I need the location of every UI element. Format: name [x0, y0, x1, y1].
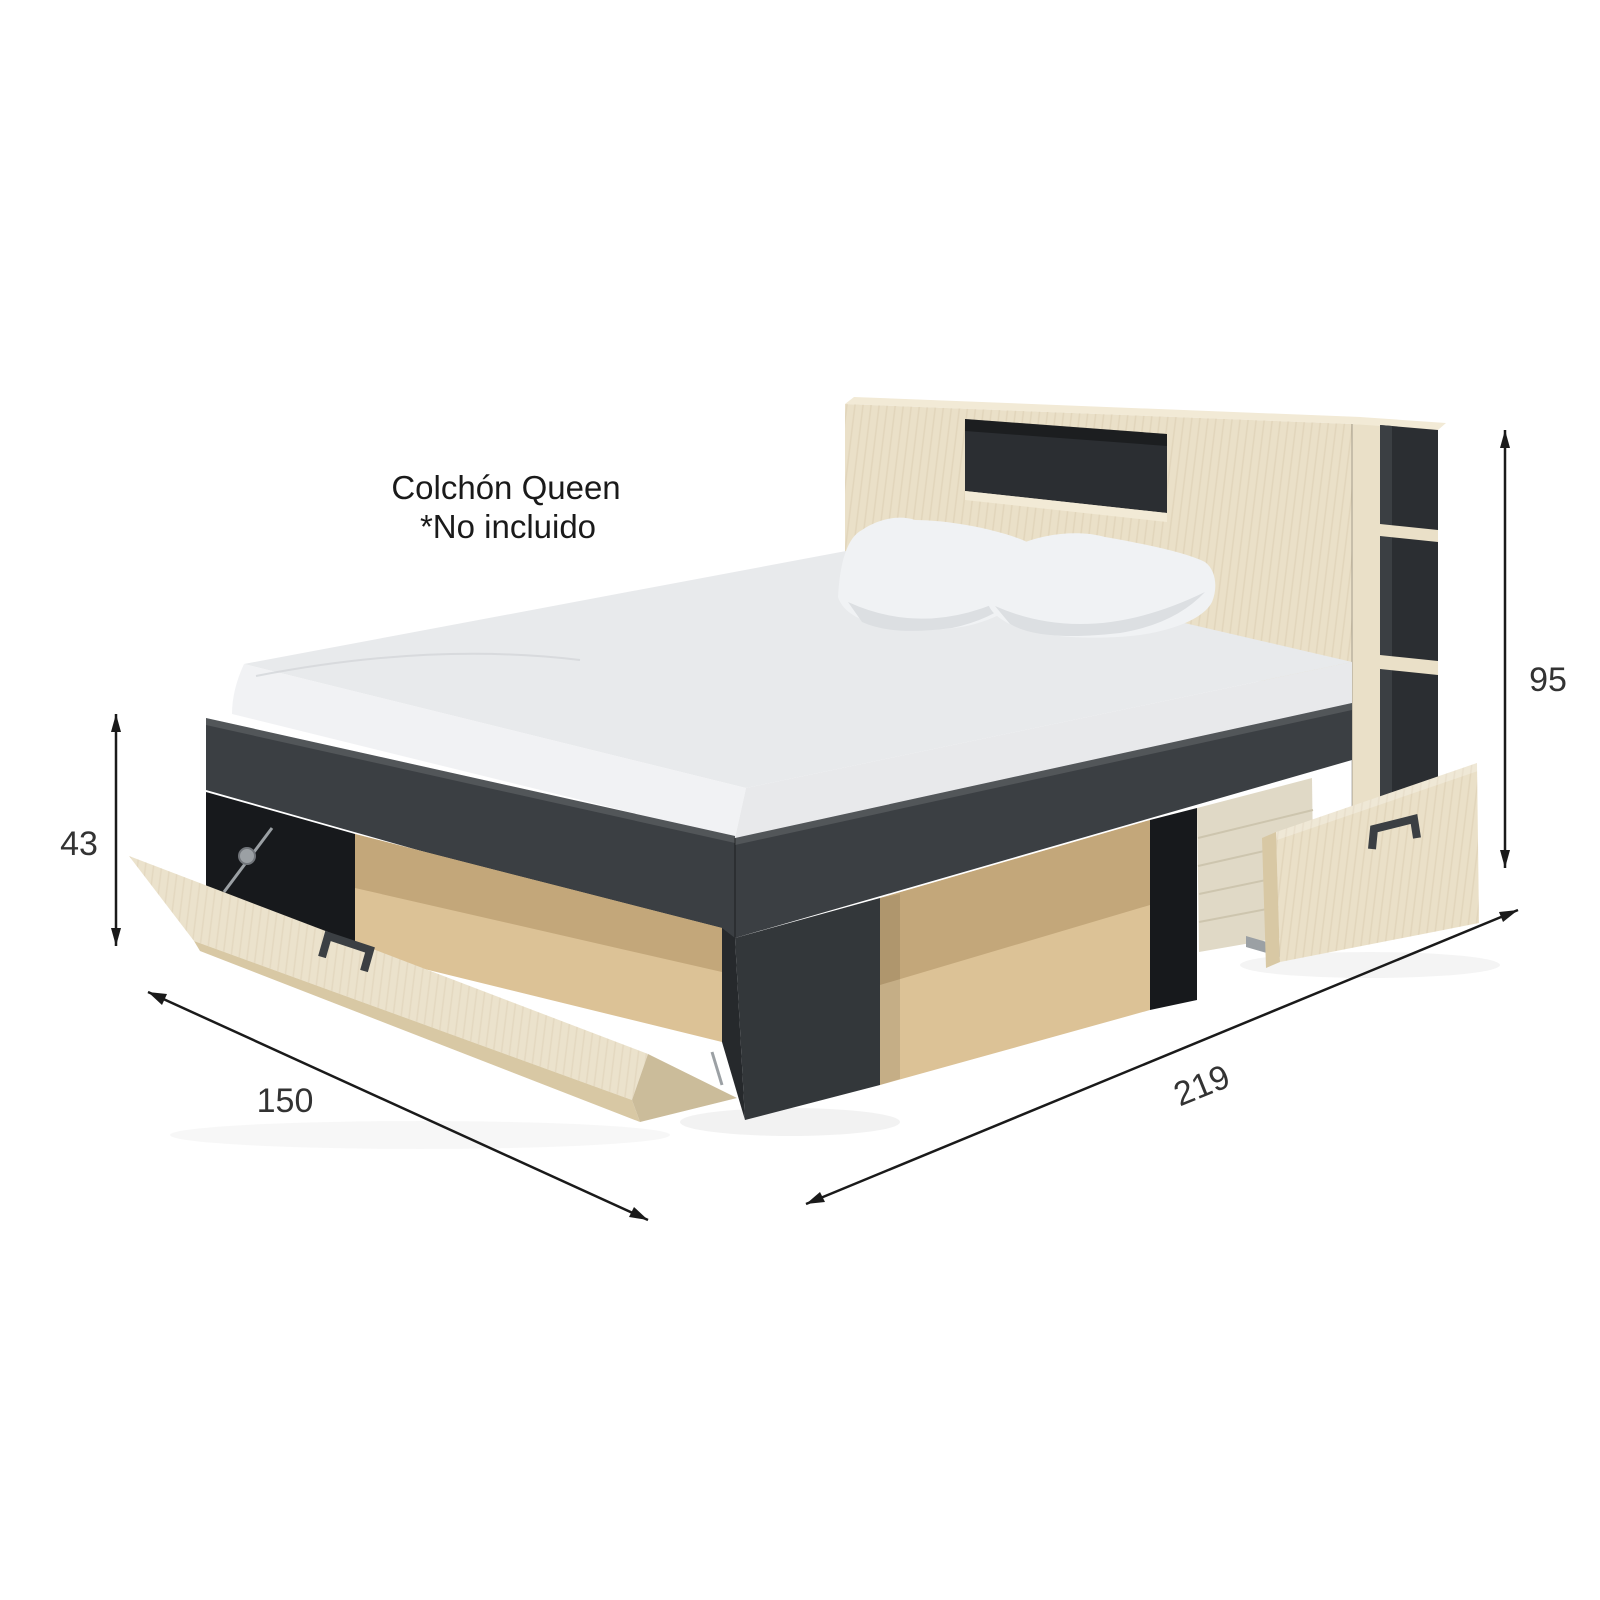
dimension-label-95: 95	[1529, 661, 1567, 699]
open-compartment-left-wall	[880, 894, 900, 1085]
mattress-note: Colchón Queen *No incluido	[391, 469, 620, 545]
dimension-label-43: 43	[60, 825, 98, 863]
arrowhead-150-left	[148, 992, 167, 1005]
shadow-under-flap	[170, 1121, 670, 1149]
dimension-footboard-height: 43	[60, 714, 121, 946]
product-dimension-diagram: 43 95 150 219 Colchón Queen *No incluido	[0, 0, 1600, 1600]
bed-diagram-canvas: 43 95 150 219 Colchón Queen *No incluido	[0, 0, 1600, 1600]
arrowhead-95-top	[1500, 430, 1510, 448]
arrowhead-219-left	[806, 1192, 825, 1204]
arrowhead-43-bottom	[111, 928, 121, 946]
shadow-under-leg	[680, 1108, 900, 1136]
flap-hinge-right	[712, 1052, 722, 1085]
dimension-label-150: 150	[257, 1082, 314, 1120]
dimension-total-height: 95	[1500, 430, 1567, 868]
mattress-note-line2: *No incluido	[420, 508, 596, 545]
drawer-unit-divider	[1150, 808, 1197, 1010]
arrowhead-95-bottom	[1500, 850, 1510, 868]
dimension-label-219: 219	[1168, 1058, 1235, 1114]
mattress-note-line1: Colchón Queen	[391, 469, 620, 506]
arrowhead-150-right	[629, 1207, 648, 1220]
flap-hinge-pin	[239, 848, 255, 864]
arrowhead-219-right	[1499, 910, 1518, 922]
arrowhead-43-top	[111, 714, 121, 732]
